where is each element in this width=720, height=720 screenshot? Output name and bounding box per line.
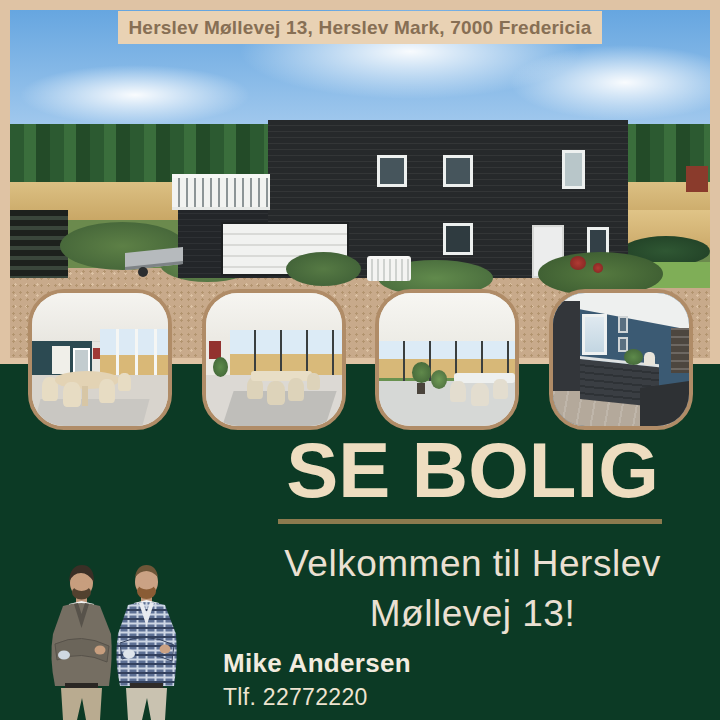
chair [288, 378, 304, 401]
agents-photo [25, 556, 210, 720]
plant [431, 370, 447, 389]
roof-terrace-railing [172, 174, 270, 210]
address-banner: Herslev Møllevej 13, Herslev Mark, 7000 … [118, 11, 602, 44]
se-bolig-cta[interactable]: SE BOLIG [225, 431, 720, 509]
rug [34, 399, 150, 426]
thumbnail-kitchen-dark-blue[interactable] [549, 289, 693, 430]
chair [118, 373, 132, 392]
agent-left [51, 565, 111, 720]
property-flyer: Herslev Møllevej 13, Herslev Mark, 7000 … [0, 0, 720, 720]
trailer-wheel [138, 267, 148, 277]
shelf-unit [52, 346, 70, 374]
chair [267, 381, 285, 405]
kitchen-window [582, 314, 608, 355]
chair [63, 382, 81, 407]
wall-art [93, 348, 100, 360]
white-bench [367, 256, 411, 281]
chair [450, 381, 466, 402]
cloud [20, 65, 250, 125]
bush [286, 252, 361, 286]
plant-pot [417, 383, 425, 394]
thumbnail-garden-room-plants[interactable] [375, 289, 519, 430]
red-barn [686, 166, 708, 192]
chair [99, 379, 115, 403]
plant [412, 362, 431, 383]
cloud [510, 45, 710, 120]
window [443, 155, 473, 187]
shelving [671, 328, 689, 373]
agent-name: Mike Andersen [223, 648, 411, 679]
window [443, 223, 473, 255]
table-lamp [644, 352, 655, 365]
red-flowers [593, 263, 603, 273]
thumbnail-dining-room-long-table[interactable] [202, 289, 346, 430]
agent-phone: Tlf. 22772220 [223, 684, 368, 711]
gold-divider-line [278, 519, 662, 524]
chair [307, 373, 321, 390]
picture-frame [618, 337, 628, 352]
table-leg [82, 386, 87, 406]
window [562, 150, 585, 189]
plant [213, 357, 228, 377]
thumbnail-dining-room-round-table[interactable] [28, 289, 172, 430]
plant [624, 349, 643, 365]
tall-cabinet [553, 301, 580, 397]
welcome-line-2: Møllevej 13! [225, 589, 720, 639]
dining-table [251, 371, 312, 380]
welcome-headline: Velkommen til Herslev Møllevej 13! [225, 539, 720, 639]
picture-frame [618, 316, 628, 333]
red-flowers [570, 256, 586, 270]
welcome-line-1: Velkommen til Herslev [225, 539, 720, 589]
chair [493, 379, 508, 399]
window [377, 155, 407, 187]
chair [471, 383, 489, 406]
agent-right [116, 565, 176, 720]
